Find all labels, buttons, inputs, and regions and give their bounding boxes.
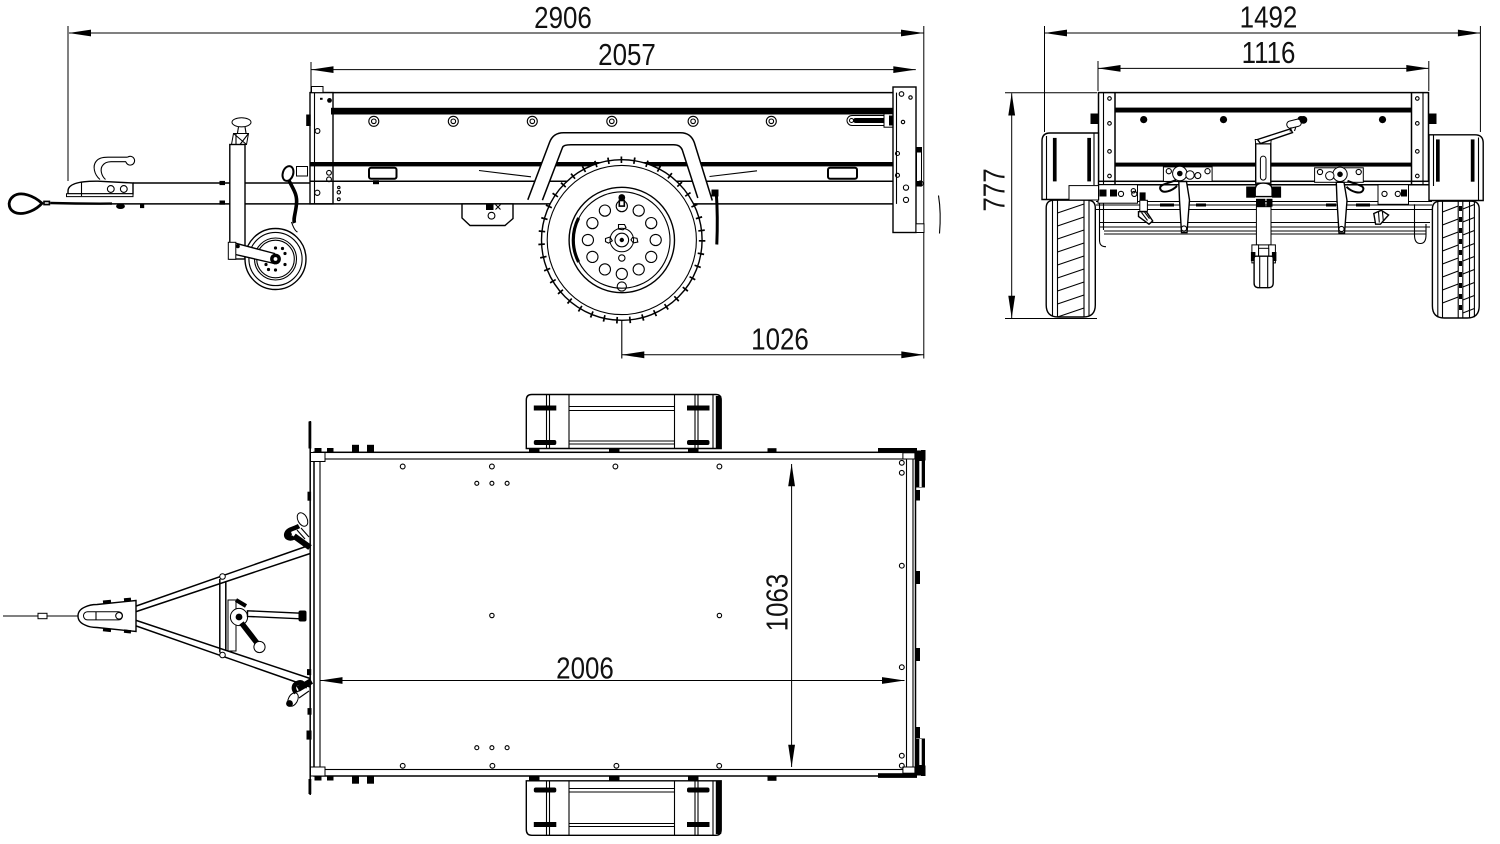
svg-text:1063: 1063 xyxy=(759,574,793,632)
svg-text:1026: 1026 xyxy=(751,321,809,355)
svg-text:2006: 2006 xyxy=(556,650,614,684)
svg-text:2906: 2906 xyxy=(534,0,592,34)
svg-text:1492: 1492 xyxy=(1240,0,1298,34)
svg-text:777: 777 xyxy=(977,168,1011,211)
svg-text:1116: 1116 xyxy=(1242,35,1296,69)
svg-text:2057: 2057 xyxy=(598,37,656,71)
